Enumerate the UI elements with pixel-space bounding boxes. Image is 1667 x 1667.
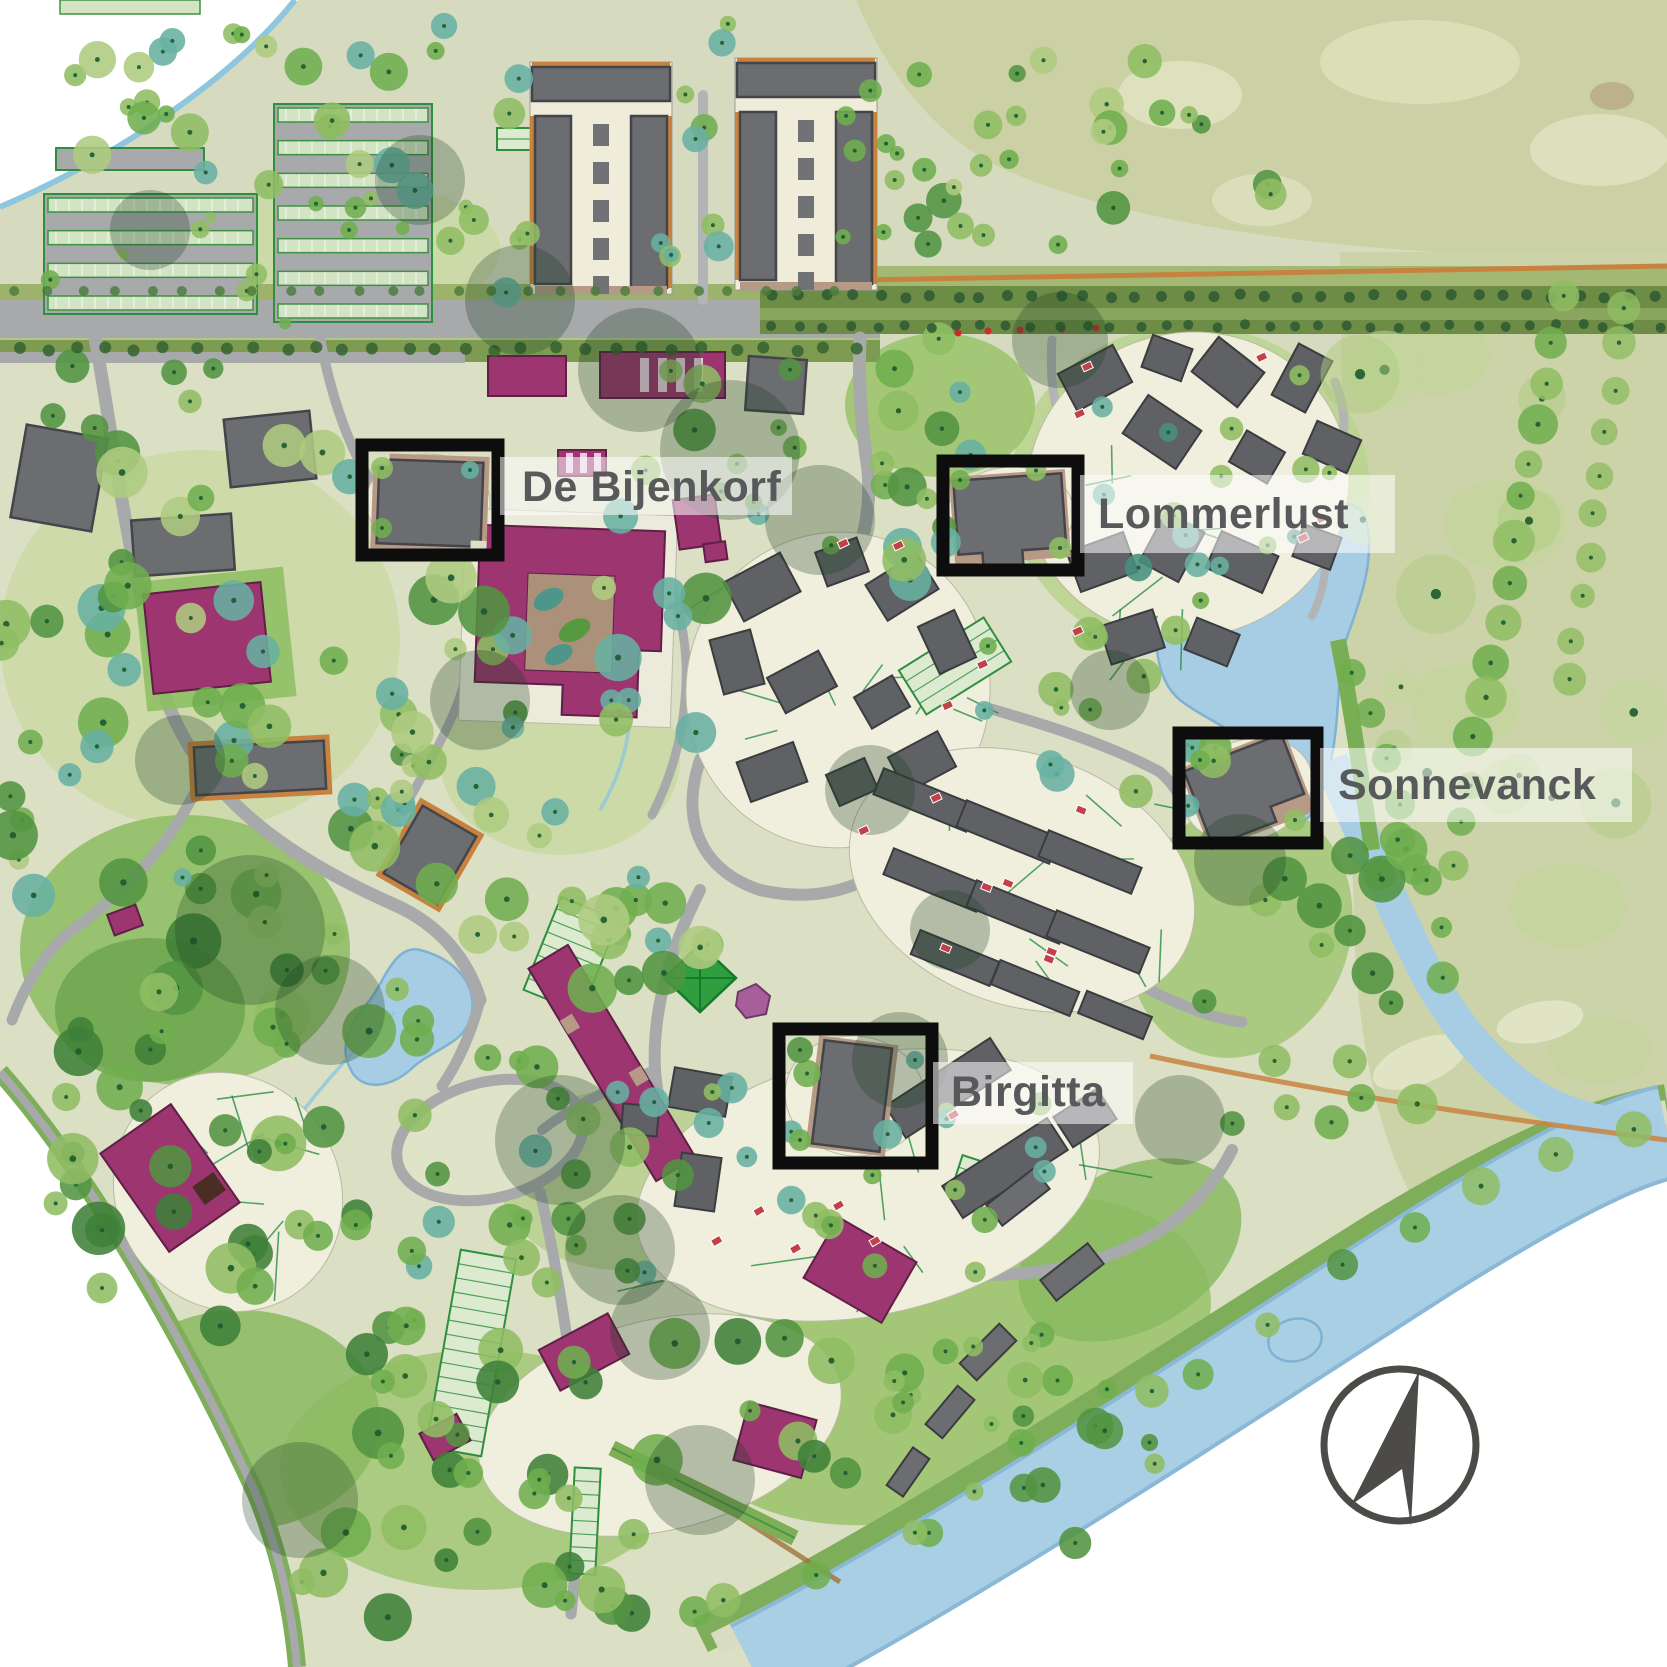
tree-center xyxy=(828,1358,834,1364)
tree-center xyxy=(281,443,287,449)
tree-center xyxy=(1501,620,1506,625)
tree-center xyxy=(958,390,962,394)
tree-center xyxy=(710,1090,714,1094)
tree-center xyxy=(404,1323,409,1328)
tree xyxy=(156,341,168,353)
tree-center xyxy=(1440,925,1444,929)
tree-center xyxy=(170,39,174,43)
tree xyxy=(79,286,89,296)
tree-center xyxy=(782,1336,787,1341)
tree-center xyxy=(228,1265,235,1272)
tree xyxy=(1394,323,1404,333)
tree-center xyxy=(1415,1101,1420,1106)
tree xyxy=(874,322,884,332)
tree-center xyxy=(1174,628,1178,632)
tree-center xyxy=(972,1490,976,1494)
tree-center xyxy=(937,337,941,341)
tree xyxy=(590,286,600,296)
tree xyxy=(900,292,911,303)
tree-center xyxy=(211,367,215,371)
tree xyxy=(71,341,83,353)
tree xyxy=(247,286,257,296)
tree-center xyxy=(261,649,265,653)
tree xyxy=(1184,291,1195,302)
tree-center xyxy=(504,896,510,902)
tree-center xyxy=(1379,876,1385,882)
tree-center xyxy=(627,1145,632,1150)
tree-center xyxy=(28,740,32,744)
tree-center xyxy=(537,834,541,838)
tree-center xyxy=(884,142,888,146)
tree-center xyxy=(1058,546,1062,550)
tree-center xyxy=(1022,1486,1026,1490)
tree xyxy=(851,343,863,355)
tree-center xyxy=(157,989,162,994)
tree-center xyxy=(410,1249,414,1253)
tree xyxy=(1129,292,1140,303)
tree-center xyxy=(795,1439,800,1444)
tree-center xyxy=(1398,684,1403,689)
tree xyxy=(757,342,769,354)
tree xyxy=(1650,291,1661,302)
tree xyxy=(1656,323,1666,333)
tree xyxy=(177,286,187,296)
tree-center xyxy=(1304,467,1308,471)
tree-center xyxy=(1451,864,1455,868)
tree xyxy=(1365,323,1375,333)
tree-center xyxy=(609,698,613,702)
tree xyxy=(795,321,805,331)
tree-center xyxy=(959,224,963,228)
tree-center xyxy=(566,1217,570,1221)
tree-center xyxy=(1581,594,1585,598)
tree-center xyxy=(927,1531,931,1535)
tree-center xyxy=(1425,878,1429,882)
tree-center xyxy=(697,945,703,951)
tree-center xyxy=(798,1048,802,1052)
tree-center xyxy=(507,111,511,115)
tree-center xyxy=(1230,1121,1234,1125)
tree-center xyxy=(507,1222,512,1227)
tree xyxy=(1446,289,1457,300)
tree xyxy=(221,343,233,355)
tree-center xyxy=(206,700,210,704)
tree-center xyxy=(537,1478,541,1482)
tree-center xyxy=(180,875,184,879)
tree-center xyxy=(437,1220,441,1224)
tree-center xyxy=(814,1213,818,1217)
tree-center xyxy=(369,196,373,200)
tree-center xyxy=(168,1164,174,1170)
tree-center xyxy=(600,916,607,923)
tree-center xyxy=(720,41,724,45)
tree-center xyxy=(267,183,271,187)
tree-center xyxy=(434,1417,439,1422)
tree-center xyxy=(436,1172,440,1176)
tree-center xyxy=(1199,122,1203,126)
tree-center xyxy=(1034,469,1038,473)
tree xyxy=(1599,292,1610,303)
tree-center xyxy=(240,703,246,709)
tree-center xyxy=(901,557,907,563)
tree-center xyxy=(616,1090,620,1094)
tree-center xyxy=(1148,1440,1152,1444)
tree-center xyxy=(466,1471,470,1475)
tree-center xyxy=(117,1084,123,1090)
tree-center xyxy=(1186,804,1190,808)
tree-center xyxy=(895,151,899,155)
tree-center xyxy=(942,198,947,203)
tree-center xyxy=(1316,903,1322,909)
tree-center xyxy=(1589,556,1593,560)
tree-center xyxy=(1602,430,1606,434)
tree-center xyxy=(636,875,640,879)
tree-center xyxy=(814,1573,818,1577)
tree-center xyxy=(402,1373,408,1379)
tree xyxy=(310,341,322,353)
tree-center xyxy=(395,987,399,991)
tree-center xyxy=(380,466,384,470)
tree xyxy=(1474,289,1485,300)
tree-center xyxy=(455,1433,459,1437)
tree-center xyxy=(301,64,306,69)
tree-center xyxy=(400,790,404,794)
tree-center xyxy=(1040,1333,1044,1337)
tree xyxy=(1396,290,1407,301)
tree-center xyxy=(160,1029,164,1033)
tree-center xyxy=(568,1565,572,1569)
tree-center xyxy=(572,1360,576,1364)
tree-center xyxy=(1431,589,1441,599)
tree-center xyxy=(1329,1120,1333,1124)
tree xyxy=(404,343,416,355)
tree-center xyxy=(943,1349,947,1353)
tree-center xyxy=(602,586,606,590)
tree-center xyxy=(1470,734,1475,739)
tree xyxy=(1265,322,1275,332)
tree-center xyxy=(971,1344,975,1348)
tree-center xyxy=(119,469,126,476)
tree xyxy=(975,320,985,330)
tree xyxy=(1315,291,1326,302)
tree-center xyxy=(442,24,446,28)
canopy-shadow xyxy=(610,1280,710,1380)
tree-center xyxy=(632,1532,636,1536)
tree xyxy=(1259,291,1270,302)
parking-row xyxy=(278,239,428,253)
tree-center xyxy=(1218,564,1222,568)
tree-center xyxy=(230,759,234,763)
canopy-shadow xyxy=(430,650,530,750)
tree-center xyxy=(853,149,857,153)
tree-center xyxy=(475,1530,479,1534)
parking-row xyxy=(60,0,200,14)
tree-center xyxy=(1104,102,1108,106)
tree-center xyxy=(187,130,192,135)
tree-center xyxy=(453,647,457,651)
tree-center xyxy=(707,1121,711,1125)
tree-center xyxy=(31,893,37,899)
label-de-bijenkorf: De Bijenkorf xyxy=(522,463,781,511)
tree-center xyxy=(652,1100,656,1104)
tree-center xyxy=(444,1558,448,1562)
tree-center xyxy=(253,1284,258,1289)
tree-center xyxy=(474,784,479,789)
tree-center xyxy=(1101,130,1105,134)
tree-center xyxy=(254,272,258,276)
tree xyxy=(396,222,410,236)
tree-center xyxy=(1040,1483,1045,1488)
tree-center xyxy=(1598,474,1602,478)
tree-center xyxy=(1629,708,1638,717)
tree-center xyxy=(1567,677,1571,681)
tree-center xyxy=(320,1570,326,1576)
tree-center xyxy=(332,659,336,663)
tree-center xyxy=(475,932,480,937)
tree-center xyxy=(45,619,49,623)
tree-center xyxy=(843,1471,847,1475)
tree-center xyxy=(812,1454,816,1458)
tree-center xyxy=(1285,1105,1289,1109)
compass-north-arrow xyxy=(1324,1369,1476,1526)
tree-center xyxy=(1196,1372,1200,1376)
tree-center xyxy=(1014,114,1018,118)
tree-center xyxy=(352,797,356,801)
tree-center xyxy=(599,1586,605,1592)
tree xyxy=(1000,321,1010,331)
tree-center xyxy=(199,848,203,852)
tree xyxy=(191,342,203,354)
tree-center xyxy=(231,738,236,743)
tree-center xyxy=(979,163,983,167)
tree-center xyxy=(788,368,792,372)
tree-center xyxy=(1348,929,1352,933)
tree xyxy=(428,343,440,355)
tree-center xyxy=(189,616,193,620)
tree-center xyxy=(347,228,351,232)
tree xyxy=(1290,321,1300,331)
tree xyxy=(791,286,801,296)
canopy-shadow xyxy=(135,715,225,805)
tree-center xyxy=(1413,1225,1417,1229)
site-plan-svg: De Bijenkorf Lommerlust Sonnevanck Birgi… xyxy=(0,0,1667,1667)
tree-center xyxy=(495,1379,501,1385)
tree-center xyxy=(1118,167,1122,171)
canopy-shadow xyxy=(375,135,465,225)
tree xyxy=(460,343,472,355)
tree-center xyxy=(693,137,697,141)
tree-center xyxy=(1042,1169,1046,1173)
tree-center xyxy=(1056,1379,1060,1383)
tree-center xyxy=(973,1270,977,1274)
tree-center xyxy=(532,1491,536,1495)
tree-center xyxy=(1519,494,1523,498)
tree-center xyxy=(735,1338,741,1344)
tree xyxy=(829,286,839,296)
tree-center xyxy=(142,116,146,120)
tree-center xyxy=(1143,59,1147,63)
tree xyxy=(286,286,296,296)
tree-center xyxy=(253,774,257,778)
tree-center xyxy=(491,647,495,651)
tree xyxy=(1208,291,1219,302)
tree xyxy=(927,323,937,333)
tree-center xyxy=(589,985,595,991)
tree xyxy=(414,286,424,296)
tree xyxy=(1579,319,1589,329)
tree-center xyxy=(669,253,673,257)
tree-center xyxy=(870,1173,874,1177)
tree-center xyxy=(172,370,176,374)
tree-center xyxy=(805,1071,809,1075)
tree xyxy=(722,286,732,296)
tree-center xyxy=(730,1086,734,1090)
label-lommerlust: Lommerlust xyxy=(1098,490,1349,538)
tree-center xyxy=(264,44,268,48)
canopy-shadow xyxy=(1012,292,1108,388)
tree-center xyxy=(481,608,488,615)
tree-center xyxy=(841,235,845,239)
tree xyxy=(792,345,804,357)
tree-center xyxy=(905,484,910,489)
tree-center xyxy=(563,1599,567,1603)
tree-center xyxy=(364,1351,370,1357)
tree-center xyxy=(204,171,208,175)
tree-center xyxy=(1166,430,1170,434)
tree xyxy=(388,286,398,296)
tree-center xyxy=(386,69,391,74)
tree-center xyxy=(886,1132,890,1136)
tree-center xyxy=(489,813,494,818)
tree xyxy=(1240,319,1250,329)
tree-center xyxy=(10,832,17,839)
tree-center xyxy=(1134,789,1138,793)
tree xyxy=(846,321,856,331)
tree-center xyxy=(321,1124,326,1129)
tree-center xyxy=(892,1379,896,1383)
parking-row xyxy=(278,304,428,318)
tree xyxy=(1292,292,1303,303)
tree-center xyxy=(1029,1341,1033,1345)
tree-center xyxy=(1614,389,1618,393)
tree-center xyxy=(663,900,668,905)
tree xyxy=(1156,291,1167,302)
tree xyxy=(1474,321,1484,331)
tree-center xyxy=(486,1056,490,1060)
tree-center xyxy=(105,632,111,638)
tree-center xyxy=(1483,695,1488,700)
tree-center xyxy=(1136,566,1140,570)
tree xyxy=(99,341,111,353)
tree-center xyxy=(1526,462,1530,466)
tree-center xyxy=(1368,711,1372,715)
tree-center xyxy=(164,112,168,116)
tree-center xyxy=(883,483,887,487)
tree-center xyxy=(90,152,95,157)
tree-center xyxy=(1187,113,1191,117)
tree-center xyxy=(1102,1428,1107,1433)
tree-center xyxy=(314,202,318,206)
tree-center xyxy=(1160,111,1164,115)
tree-center xyxy=(534,1064,540,1070)
tree-center xyxy=(172,1209,177,1214)
tree-center xyxy=(1395,837,1400,842)
tree-center xyxy=(358,162,362,166)
tree-center xyxy=(542,1582,548,1588)
tree-center xyxy=(1320,943,1324,947)
tree xyxy=(1002,290,1013,301)
tree-center xyxy=(717,244,721,248)
tree-center xyxy=(1023,1378,1028,1383)
tree xyxy=(1344,292,1355,303)
tree-center xyxy=(873,1264,877,1268)
tree-center xyxy=(693,730,698,735)
tree-center xyxy=(1048,762,1052,766)
tree xyxy=(314,286,324,296)
tree-center xyxy=(916,216,920,220)
tree-center xyxy=(880,461,884,465)
tree xyxy=(731,344,743,356)
tree-center xyxy=(627,978,631,982)
tree xyxy=(454,286,464,296)
tree-center xyxy=(953,1188,957,1192)
tree xyxy=(42,286,52,296)
canopy-shadow xyxy=(275,955,385,1065)
tree-center xyxy=(881,230,885,234)
tree-center xyxy=(986,644,990,648)
tree-center xyxy=(726,22,730,26)
tree-center xyxy=(902,1370,907,1375)
tree-center xyxy=(1007,157,1011,161)
tree-center xyxy=(1535,422,1540,427)
tree-center xyxy=(188,399,192,403)
tree-center xyxy=(553,810,557,814)
tree-center xyxy=(223,1128,227,1132)
tree-center xyxy=(896,408,901,413)
tree-center xyxy=(683,92,687,96)
tree xyxy=(1213,322,1223,332)
tree-center xyxy=(1293,818,1297,822)
tree xyxy=(283,344,295,356)
tree-center xyxy=(371,843,378,850)
tree-center xyxy=(676,1173,680,1177)
site-plan-map: De Bijenkorf Lommerlust Sonnevanck Birgi… xyxy=(0,0,1667,1667)
tree-center xyxy=(69,1155,76,1162)
tree-center xyxy=(417,1264,421,1268)
canopy-shadow xyxy=(242,1442,358,1558)
tree xyxy=(847,289,858,300)
tree-center xyxy=(1562,294,1566,298)
tree-center xyxy=(891,1412,896,1417)
tree-center xyxy=(245,1241,250,1246)
tree-center xyxy=(120,879,126,885)
tree-center xyxy=(1549,341,1553,345)
tree-center xyxy=(844,114,848,118)
tree-center xyxy=(127,105,131,109)
parking-row xyxy=(278,271,428,285)
tree-center xyxy=(1272,1059,1276,1063)
tree xyxy=(9,286,19,296)
canopy-shadow xyxy=(465,245,575,355)
tree xyxy=(215,286,225,296)
tree-center xyxy=(434,49,438,53)
tree xyxy=(279,317,291,329)
tree xyxy=(336,344,348,356)
tree-center xyxy=(1266,1323,1270,1327)
tree-center xyxy=(1105,1387,1109,1391)
tree-center xyxy=(332,932,336,936)
tree-center xyxy=(348,826,354,832)
